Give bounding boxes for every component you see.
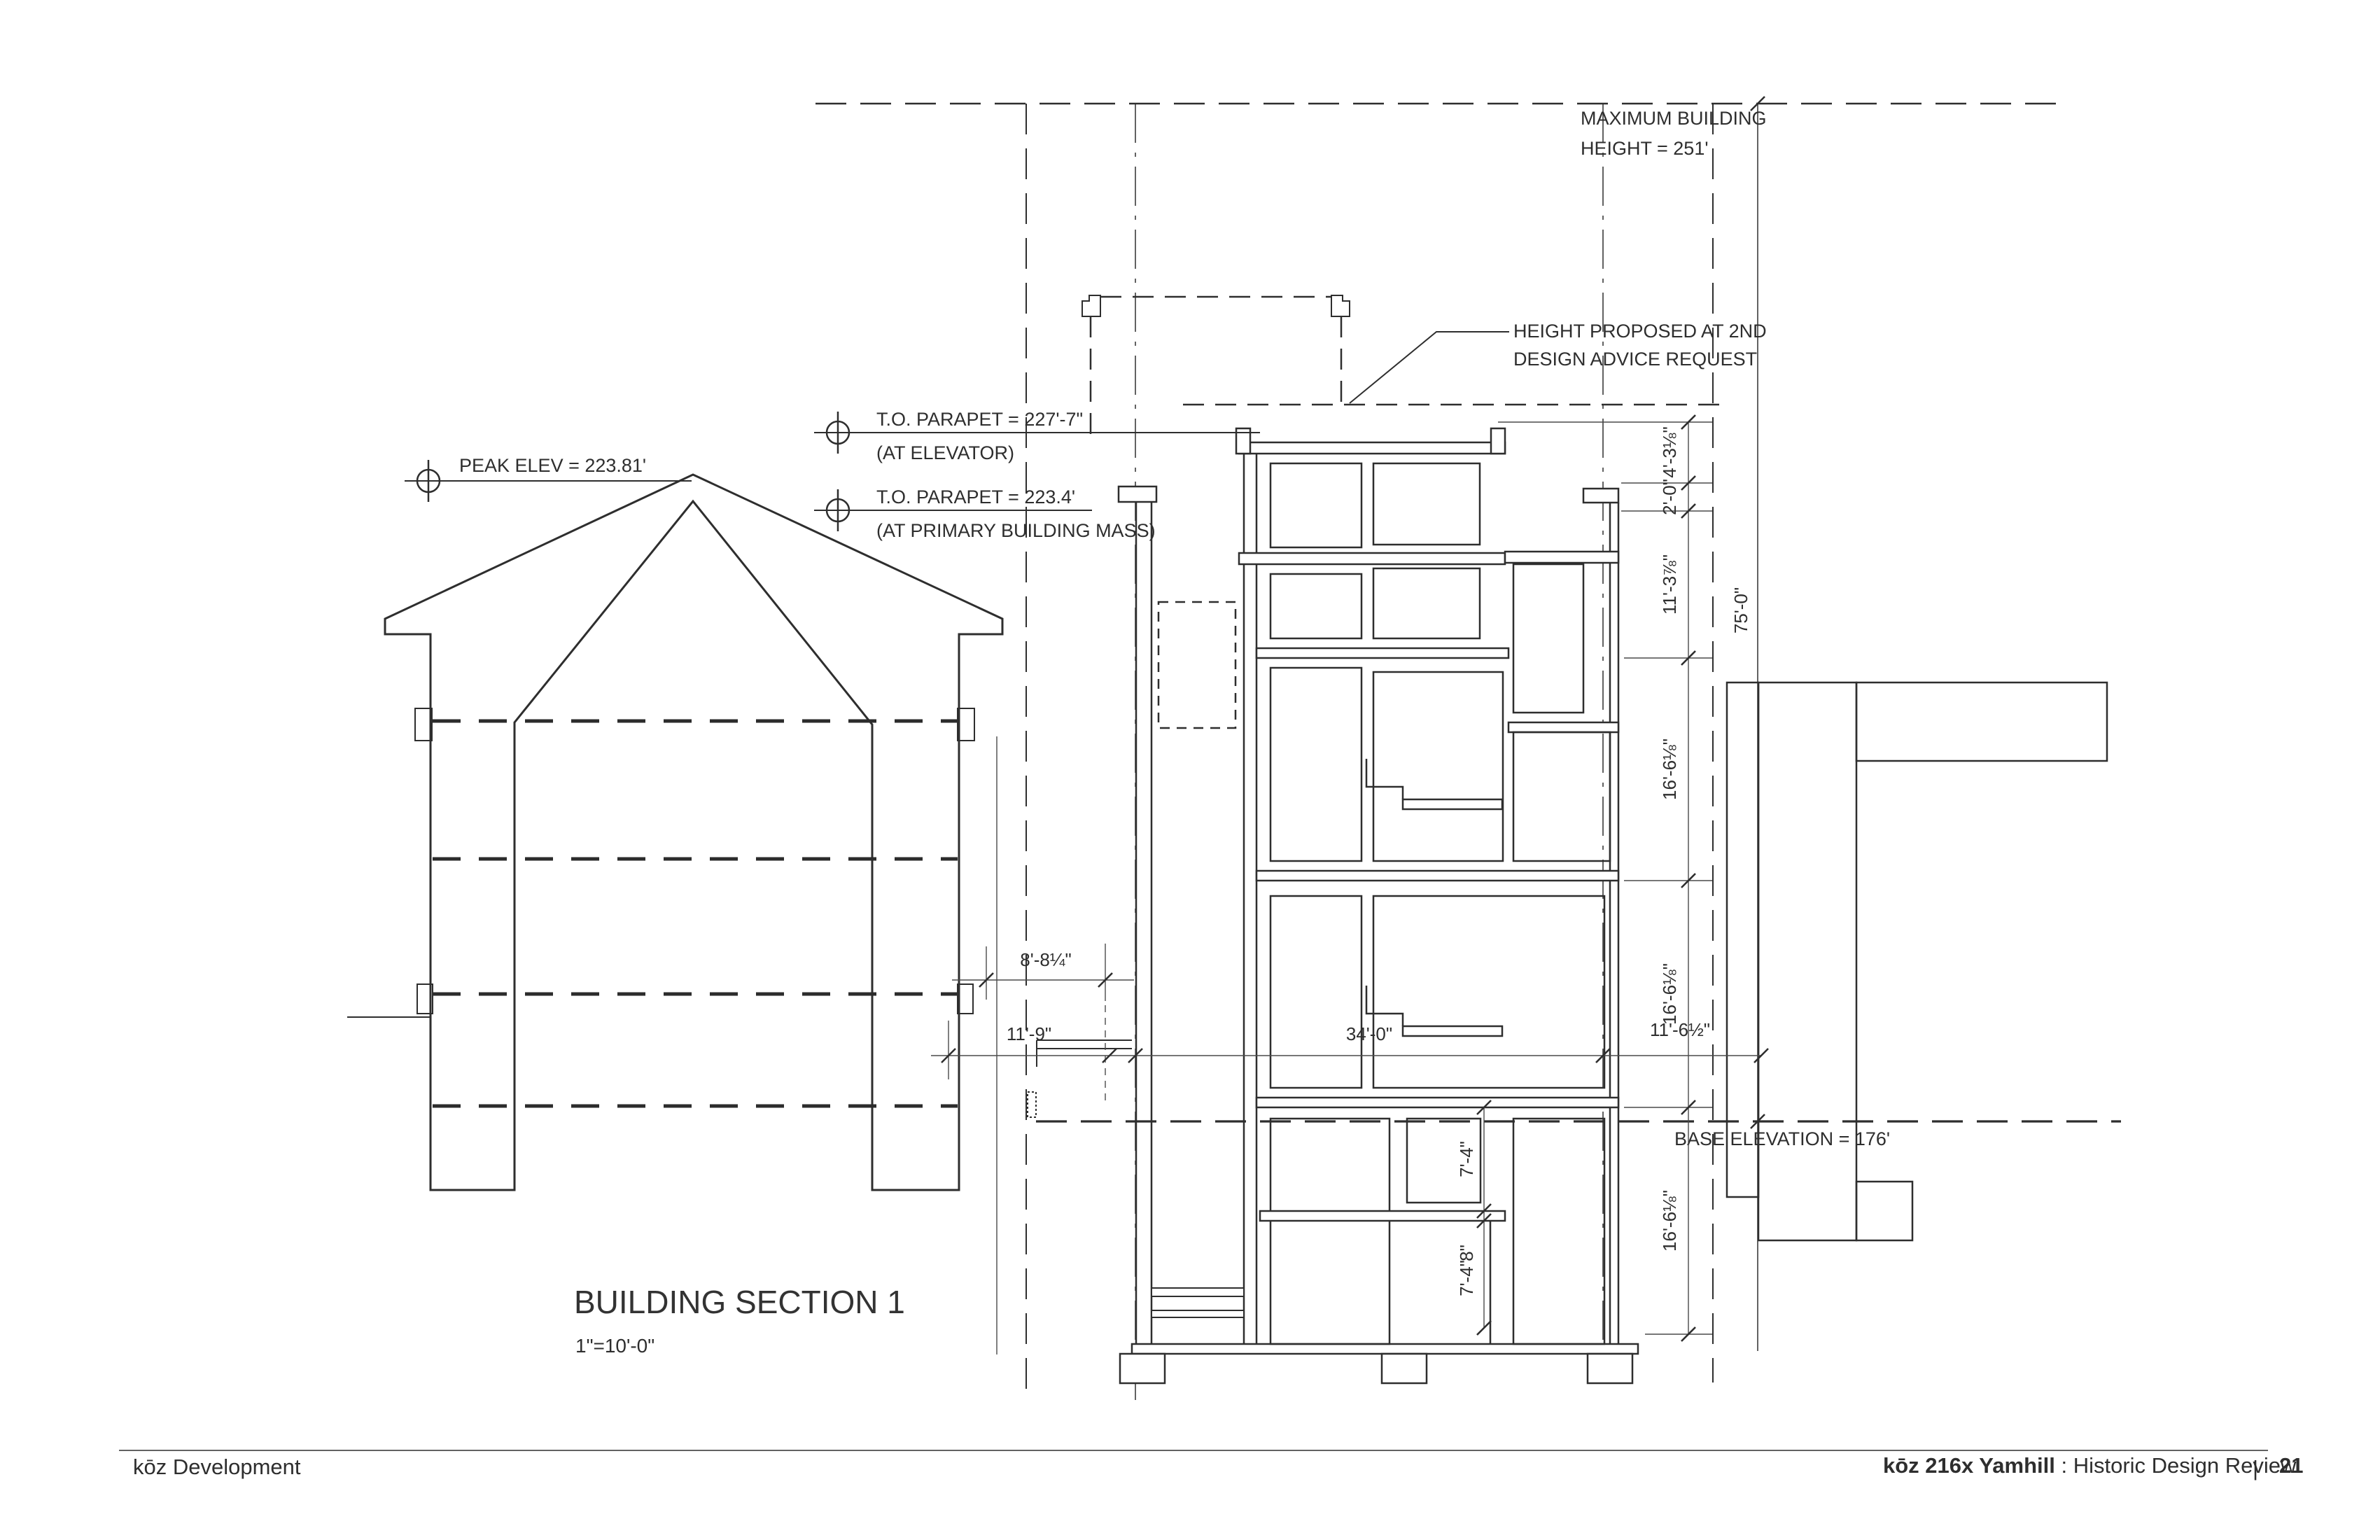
footer-page-number: 21 <box>2279 1453 2303 1478</box>
dim-lower-chain-2: 7'-4" <box>1456 1260 1477 1296</box>
floor-slab-5-offset <box>1508 722 1618 732</box>
mezzanine-slab <box>1260 1211 1505 1221</box>
footer-company: kōz Development <box>133 1455 301 1479</box>
footer-project-title: kōz 216x Yamhill : Historic Design Revie… <box>1883 1453 2297 1478</box>
elevator-parapet-slab <box>1239 442 1505 454</box>
entry-stair-slab-upper <box>1151 1288 1244 1296</box>
primary-parapet-cornice <box>1583 489 1618 503</box>
dim-lower-chain-1: 8" <box>1456 1245 1477 1261</box>
footing-left <box>1120 1354 1165 1383</box>
floor-slab-4 <box>1256 871 1618 881</box>
penthouse-floor-slab <box>1239 553 1505 564</box>
proposed-tower-cornice-right <box>1331 295 1350 316</box>
dim-right-chain-4: 16'-6⅛" <box>1659 963 1680 1025</box>
roof-deck-slab <box>1505 552 1618 563</box>
drawing-title: BUILDING SECTION 1 <box>574 1284 905 1320</box>
neighbor-roof-bar <box>1856 682 2107 761</box>
room-l4-a <box>1270 668 1361 861</box>
footer-project-suffix: : Historic Design Review <box>2055 1453 2297 1478</box>
max-height-label-line1: MAXIMUM BUILDING <box>1581 108 1767 129</box>
footing-middle <box>1382 1354 1427 1383</box>
neighbor-building-right <box>1727 682 2107 1240</box>
peak-elev-label: PEAK ELEV = 223.81' <box>459 455 646 476</box>
historic-building-section <box>347 475 1132 1354</box>
proposed-height-leader <box>1350 332 1509 403</box>
room-l2-a <box>1270 1119 1389 1344</box>
room-l3-b <box>1373 896 1604 1088</box>
dim-site-height: 75'-0" <box>1730 587 1751 633</box>
room-l4-b <box>1373 672 1503 861</box>
room-l5-a <box>1270 574 1361 638</box>
belt-course-left-upper <box>415 708 432 741</box>
proposed-height-label-line2: DESIGN ADVICE REQUEST <box>1513 349 1757 370</box>
dim-lower-chain-0: 7'-4" <box>1456 1141 1477 1177</box>
dim-right-chain-1: 2'-0" <box>1659 479 1680 515</box>
proposed-tower-cornice-left <box>1082 295 1100 316</box>
historic-building-walls-roof <box>385 475 1002 1190</box>
room-l5-c <box>1513 564 1583 713</box>
dim-right-chain-3: 16'-6⅛" <box>1659 738 1680 800</box>
penthouse-room-2 <box>1373 463 1480 545</box>
neighbor-core-band <box>1758 682 1856 1240</box>
elevator-parapet-cap-right <box>1491 428 1505 454</box>
shaft-dashed-opening <box>1158 602 1235 728</box>
footing-right <box>1588 1354 1632 1383</box>
parapet-primary-label-line1: T.O. PARAPET = 223.4' <box>876 486 1075 507</box>
penthouse-room-1 <box>1270 463 1361 547</box>
footer: kōz Development kōz 216x Yamhill : Histo… <box>119 1450 2303 1480</box>
parapet-elevator-label-line1: T.O. PARAPET = 227'-7" <box>876 409 1083 430</box>
room-l3-a <box>1270 896 1361 1088</box>
room-l4-c <box>1513 732 1610 861</box>
parapet-primary-label-line2: (AT PRIMARY BUILDING MASS) <box>876 520 1156 541</box>
dimensions: 4'-3⅛" 2'-0" 11'-3⅞" 16'-6⅛" 16'-6⅛" 16'… <box>931 97 1768 1341</box>
reference-lines <box>815 104 2121 1400</box>
dim-h-left: 11'-9" <box>1007 1023 1051 1044</box>
room-l5-b <box>1373 568 1480 638</box>
belt-course-right-upper <box>958 708 974 741</box>
stair-step-l4 <box>1366 759 1403 799</box>
entry-door-dashed <box>1028 1092 1036 1117</box>
base-elevation-label: BASE ELEVATION = 176' <box>1674 1128 1890 1149</box>
room-l2-c <box>1513 1119 1604 1344</box>
proposed-building-section <box>1119 428 1638 1383</box>
neighbor-wall-band <box>1727 682 1758 1197</box>
floor-slab-3 <box>1256 1098 1618 1107</box>
dim-right-chain-0: 4'-3⅛" <box>1659 426 1680 477</box>
proposed-height-label-line1: HEIGHT PROPOSED AT 2ND <box>1513 321 1767 342</box>
max-height-label-line2: HEIGHT = 251' <box>1581 138 1709 159</box>
dim-right-chain-5: 16'-6⅛" <box>1659 1190 1680 1252</box>
building-section-sheet: MAXIMUM BUILDING HEIGHT = 251' HEIGHT PR… <box>0 0 2380 1540</box>
dim-h-right: 11'-6½" <box>1650 1019 1710 1040</box>
ground-slab <box>1132 1344 1638 1354</box>
stair-landing-l4 <box>1403 799 1502 809</box>
left-parapet-cornice <box>1119 486 1156 502</box>
stair-landing-l3 <box>1403 1026 1502 1036</box>
dim-upper: 8'-8¼" <box>1020 949 1071 970</box>
dim-right-chain-2: 11'-3⅞" <box>1659 554 1680 615</box>
dim-h-mid: 34'-0" <box>1346 1023 1392 1044</box>
footer-divider: | <box>2253 1456 2258 1480</box>
entry-stair-slab-lower <box>1151 1310 1244 1317</box>
floor-slab-5 <box>1256 648 1508 658</box>
neighbor-foundation-step <box>1856 1182 1912 1240</box>
title-block: BUILDING SECTION 1 1"=10'-0" <box>574 1284 905 1357</box>
footer-project-name: kōz 216x Yamhill <box>1883 1453 2055 1478</box>
drawing-scale: 1"=10'-0" <box>575 1335 654 1357</box>
parapet-elevator-label-line2: (AT ELEVATOR) <box>876 442 1014 463</box>
stair-step-l3 <box>1366 986 1403 1026</box>
